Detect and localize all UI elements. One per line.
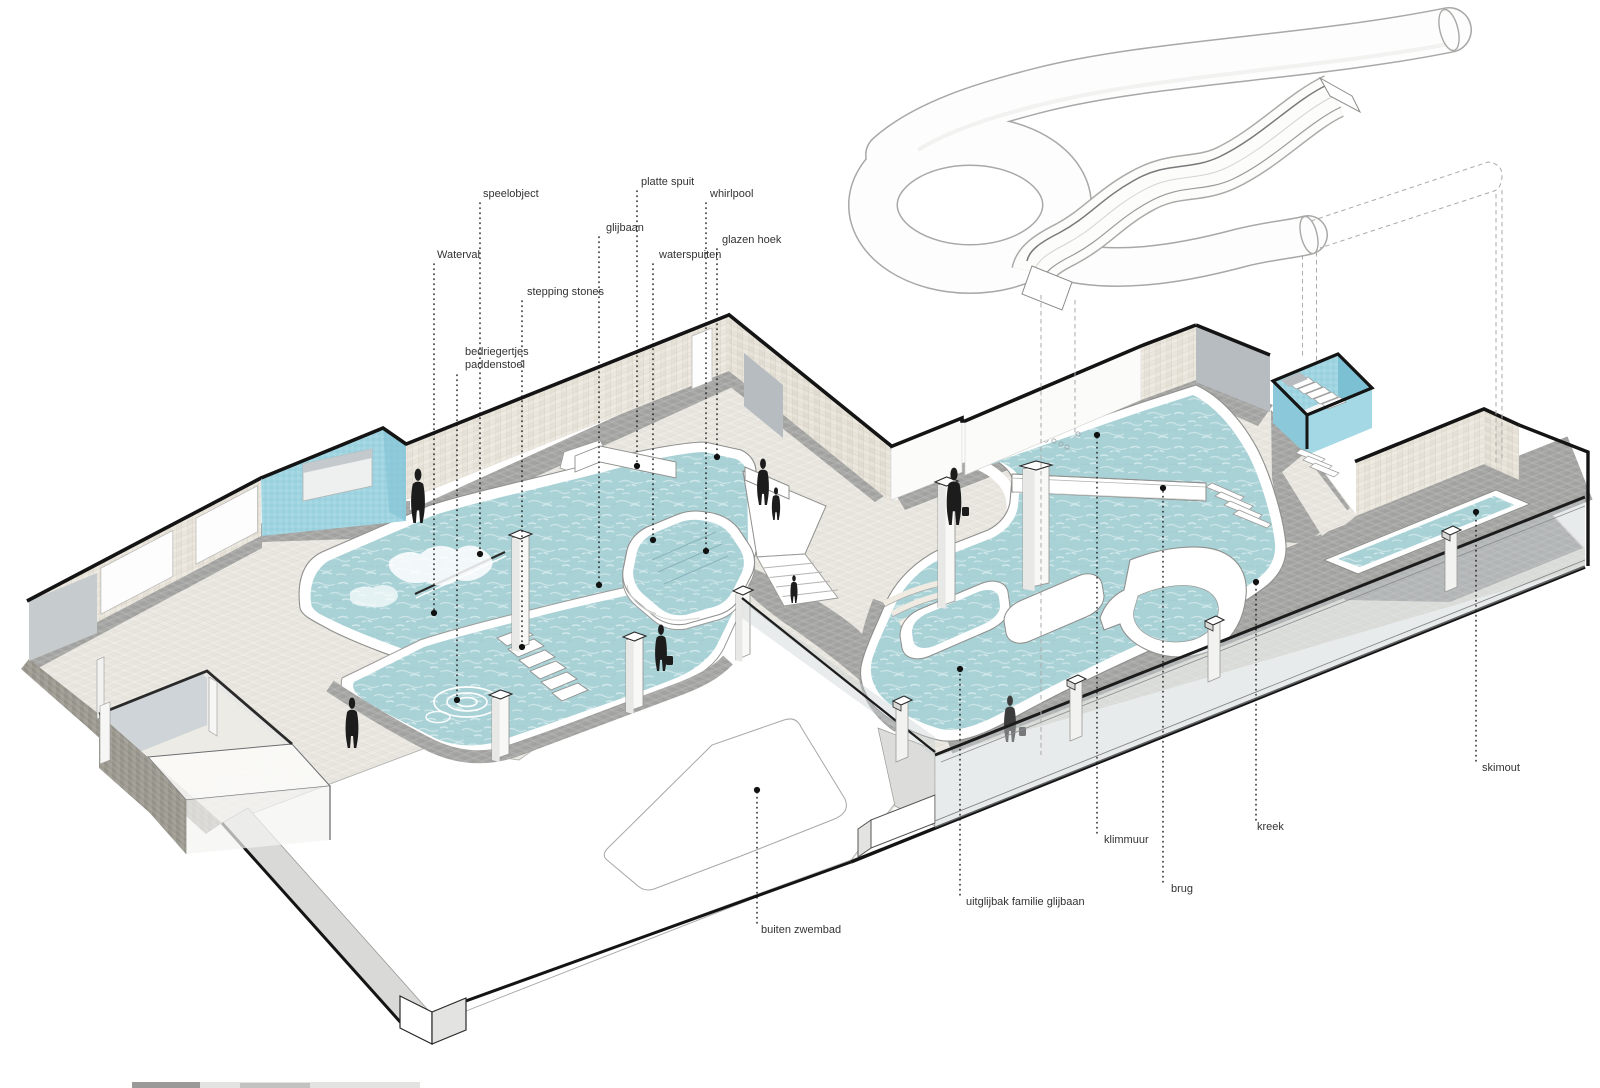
svg-text:Waterval: Waterval — [437, 249, 480, 261]
svg-text:platte spuit: platte spuit — [641, 176, 694, 188]
svg-text:paddenstoel: paddenstoel — [465, 359, 525, 371]
svg-text:bedriegertjes: bedriegertjes — [465, 346, 529, 358]
svg-text:glijbaan: glijbaan — [606, 222, 644, 234]
svg-text:speelobject: speelobject — [483, 188, 539, 200]
svg-text:glazen hoek: glazen hoek — [722, 234, 782, 246]
svg-text:skimout: skimout — [1482, 762, 1520, 774]
svg-text:stepping stones: stepping stones — [527, 286, 605, 298]
svg-text:klimmuur: klimmuur — [1104, 834, 1149, 846]
svg-text:whirlpool: whirlpool — [709, 188, 753, 200]
svg-text:waterspuiten: waterspuiten — [658, 249, 721, 261]
svg-text:uitglijbak familie glijbaan: uitglijbak familie glijbaan — [966, 896, 1085, 908]
svg-text:kreek: kreek — [1257, 821, 1284, 833]
svg-text:brug: brug — [1171, 883, 1193, 895]
svg-text:buiten zwembad: buiten zwembad — [761, 924, 841, 936]
